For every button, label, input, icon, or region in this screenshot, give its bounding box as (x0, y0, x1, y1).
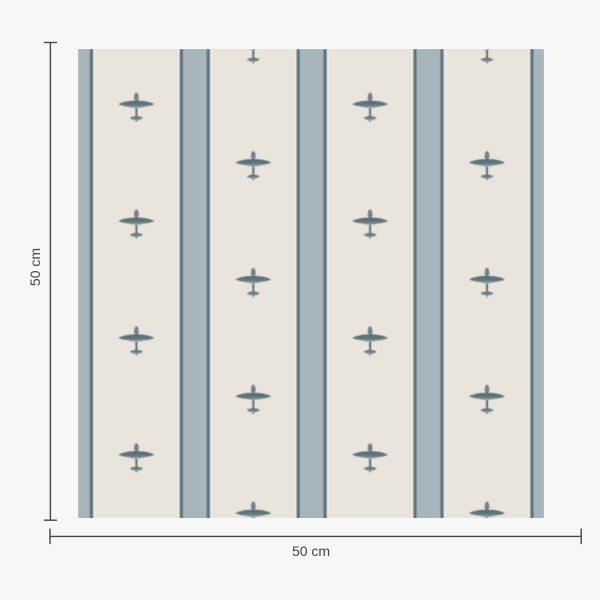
svg-text:50 cm: 50 cm (27, 248, 43, 286)
svg-text:50 cm: 50 cm (292, 543, 330, 559)
